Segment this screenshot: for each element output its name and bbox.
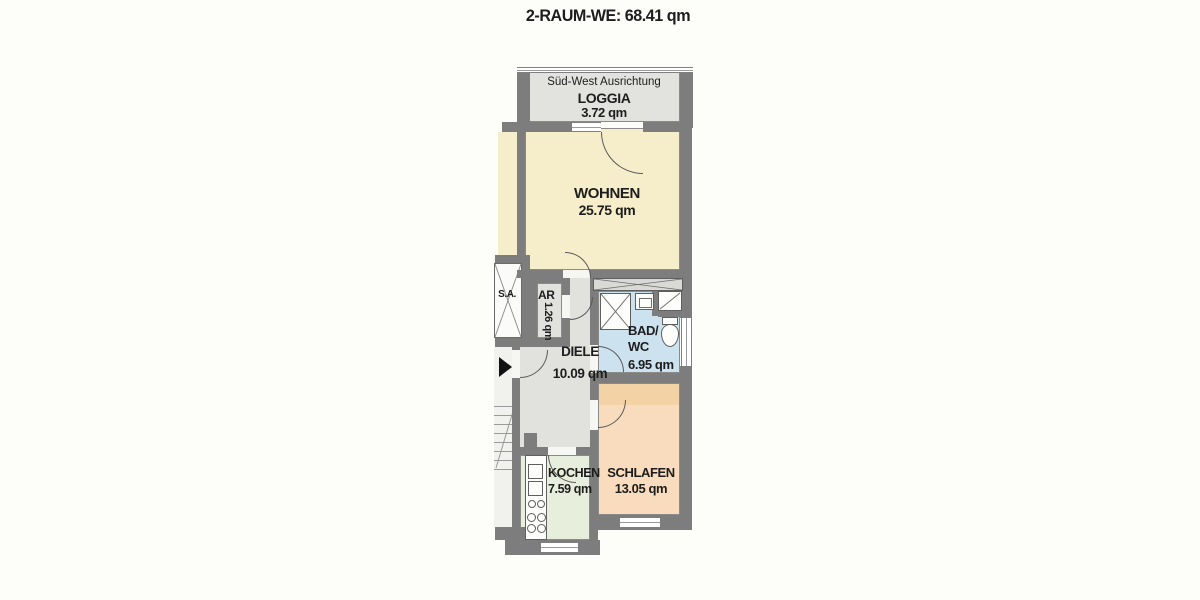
diele-area: 10.09 qm	[544, 366, 616, 382]
door-gap-schlafen	[590, 400, 598, 430]
sink	[635, 293, 654, 310]
elevator-label: S.A.	[494, 289, 520, 301]
wall	[495, 527, 525, 540]
ar-area: 1.26 qm	[540, 302, 554, 346]
shower-cross-icon	[601, 294, 630, 329]
wohnen-area: 25.75 qm	[507, 202, 707, 218]
stove-burner-icon	[527, 524, 536, 533]
wall	[590, 383, 598, 400]
bad-name: BAD/ WC	[628, 323, 680, 356]
wall	[576, 447, 593, 455]
wall	[512, 378, 520, 447]
wall	[528, 270, 537, 347]
loggia-railing	[517, 67, 693, 73]
kitchen-window	[541, 542, 578, 553]
wall	[495, 255, 530, 263]
floor-plan-page: 2-RAUM-WE: 68.41 qm	[0, 0, 1200, 600]
stove-burner-icon	[537, 524, 546, 533]
loggia-name: LOGGIA	[504, 90, 704, 106]
orientation-label: Süd-West Ausrichtung	[504, 76, 704, 89]
installation-wall	[593, 278, 683, 291]
diele-name: DIELE	[544, 344, 616, 360]
wall-pillar	[524, 433, 537, 447]
ar-name: AR	[538, 289, 562, 303]
sink-bowl-icon	[528, 500, 536, 508]
wall	[590, 270, 692, 278]
sink-bowl-icon	[537, 500, 545, 508]
shaft-diagonal-icon	[659, 292, 681, 310]
schlafen-area: 13.05 qm	[606, 482, 676, 497]
wall-right-exterior	[680, 366, 692, 530]
door-gap-ar	[562, 295, 570, 318]
entrance-arrow-icon	[499, 357, 512, 377]
balcony-window	[572, 122, 601, 132]
hatch-cross-icon	[594, 279, 682, 290]
schlafen-name: SCHLAFEN	[606, 466, 676, 481]
bathroom-window	[681, 318, 692, 366]
kitchen-cabinet	[528, 481, 543, 496]
shower	[600, 293, 631, 330]
wall	[495, 338, 530, 347]
wall	[502, 122, 572, 132]
kitchen-cabinet	[528, 464, 543, 479]
stove-burner-icon	[537, 513, 546, 522]
loggia-area: 3.72 qm	[504, 106, 704, 121]
door-gap-kochen	[548, 447, 576, 455]
kochen-name: KOCHEN	[548, 466, 594, 480]
wohnen-name: WOHNEN	[507, 185, 707, 202]
page-title: 2-RAUM-WE: 68.41 qm	[466, 6, 751, 26]
stove-burner-icon	[527, 513, 536, 522]
bedroom-window	[620, 517, 660, 528]
sink-basin	[639, 298, 652, 308]
shaft	[658, 291, 682, 311]
entrance-door-gap	[512, 350, 520, 378]
bad-area: 6.95 qm	[628, 358, 680, 373]
kochen-area: 7.59 qm	[548, 482, 594, 496]
